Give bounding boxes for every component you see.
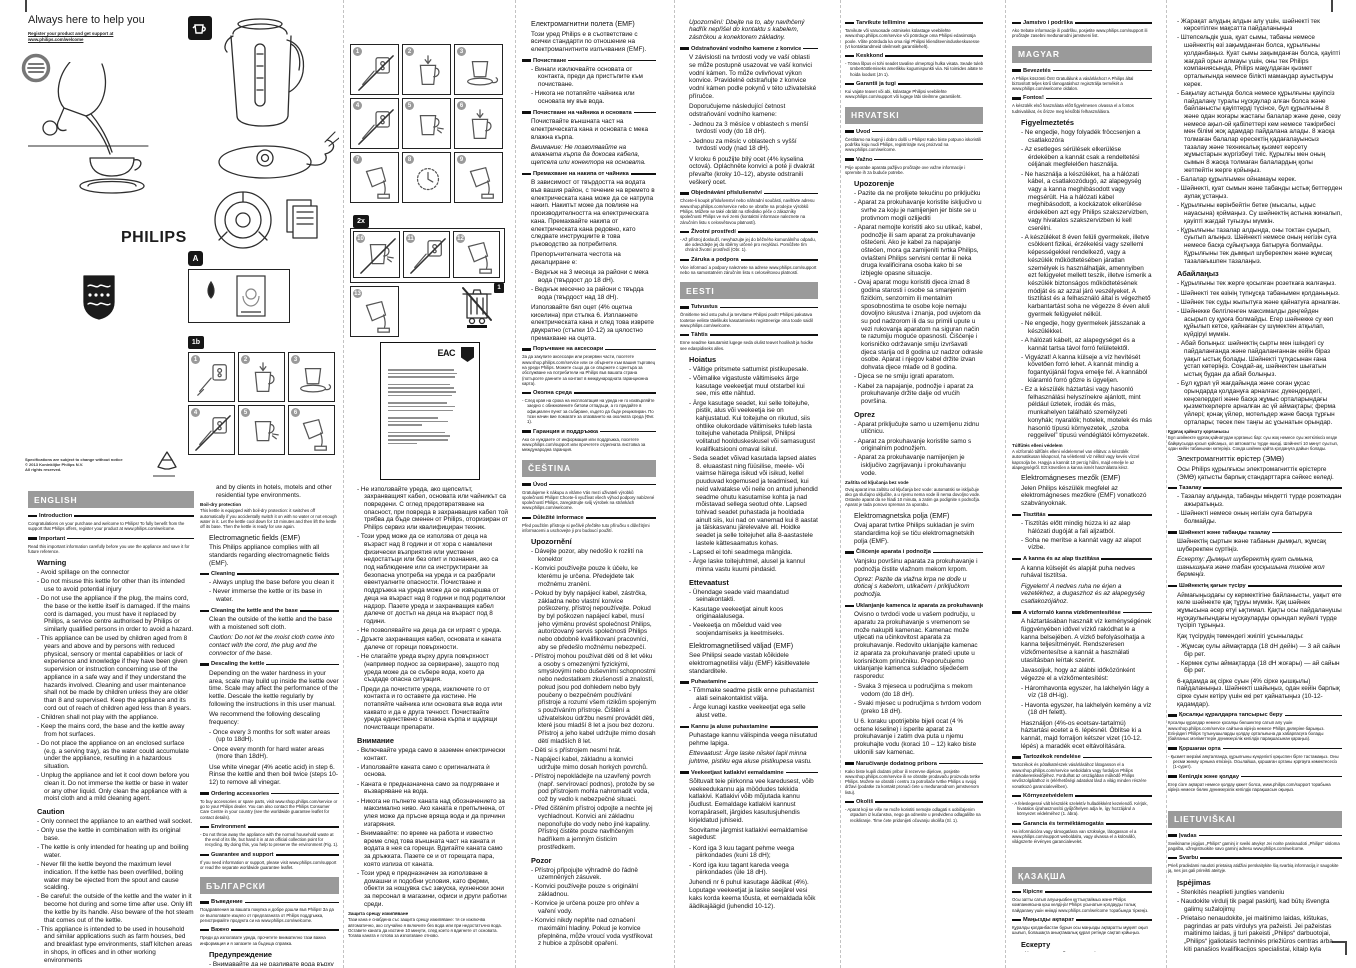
- paragraph: A kanna külsejét és alapját puha nedves …: [1021, 565, 1152, 580]
- list-item: Do not use the appliance if the plug, th…: [37, 595, 194, 634]
- list-item: Ühendage seade vaid maandatud seinakonta…: [689, 589, 818, 604]
- list-item: Құрылғыны тазалар алдында, оны токтан су…: [1177, 227, 1342, 266]
- subsection-title: Hoiatus: [689, 355, 818, 364]
- fine-print-item: Až přístroj doslouží, nevyhazujte jej do…: [680, 237, 818, 253]
- step-13-pictogram: 13: [350, 286, 399, 337]
- list-item: Тазалау алдында, табанды міндетті түрде …: [1177, 493, 1342, 508]
- list-item: Před čištěním přístroj odpojte a nechte …: [531, 805, 656, 851]
- section-heading: Keskkond: [845, 53, 983, 59]
- fine-print: Егер сізге ақпарат немесе қолдау қажет б…: [1168, 782, 1342, 793]
- minor-heading: Elektromagnetilised väljad (EMF): [689, 642, 818, 650]
- fine-print: A készülék első használata előtt figyelm…: [1012, 103, 1152, 114]
- list-item: Tisztítás előtt mindig húzza ki az alap …: [1021, 520, 1152, 535]
- step-5-pictogram: 5: [238, 405, 285, 455]
- section-heading: Ordering accessories: [200, 791, 339, 797]
- note-paragraph: Caution: Do not let the moist cloth come…: [209, 634, 339, 657]
- note-paragraph: Figyelem! A nedves ruha ne érjen a vezet…: [1021, 583, 1152, 606]
- list-item: Внимавайте да не разливате вода върху ко…: [209, 961, 339, 966]
- note-paragraph: Внимание: Не позволявайте на влажната къ…: [531, 144, 656, 167]
- paragraph: В зависимост от твърдостта на водата във…: [531, 179, 656, 248]
- list-item: Once every 3 months for soft water areas…: [209, 729, 339, 744]
- section-heading: Tisztítás: [1012, 512, 1152, 518]
- spacer: [1168, 794, 1342, 804]
- list-item: Djeca se ne smiju igrati aparatom.: [854, 373, 983, 381]
- list-item: Kord iga 3 kuu tagant pehme veega piirko…: [689, 845, 818, 860]
- list-item: Този уред може да се използва от деца на…: [357, 533, 508, 625]
- list-item: Kasutage veekeetjat ainult koos originaa…: [689, 606, 818, 621]
- list-item: Võimalike vigastuste vältimiseks ärge ka…: [689, 375, 818, 398]
- section-heading: Introduction: [28, 513, 194, 519]
- step-10-pictogram: 10: [353, 231, 400, 278]
- language-header: LIETUVIŠKAI: [1168, 811, 1342, 828]
- paragraph: V kroku 6 použijte bílý ocet (4% kyselin…: [689, 156, 818, 187]
- fine-print: Kako biste kupili dodatni pribor ili rez…: [845, 769, 983, 795]
- list-item: Only connect the appliance to an earthed…: [37, 818, 194, 826]
- list-item: Aparat za prokuhavanje namijenjen je isk…: [854, 454, 983, 477]
- section-heading: Гаранция и поддръжка: [522, 429, 656, 435]
- section-heading: Kannu ja aluse puhastamine: [680, 724, 818, 730]
- language-header: MAGYAR: [1012, 46, 1152, 63]
- list-item: A hálózati kábelt, az alapegységet és a …: [1021, 337, 1152, 352]
- list-item: Ärge kasutage seadet, kui selle toitejuh…: [689, 400, 818, 454]
- list-item: Vältige pritsmete sattumist pistikupesal…: [689, 366, 818, 374]
- list-item: Seda seadet võivad kasutada lapsed alate…: [689, 455, 818, 547]
- list-item: Stenkitės neaplieti jungties vandeniu: [1177, 889, 1342, 897]
- language-header: ENGLISH: [28, 491, 194, 508]
- list-item: Avoid spillage on the connector: [37, 569, 194, 577]
- paragraph: Ovisno o tvrdoći vode u vašem području, …: [854, 611, 983, 680]
- step-2-pictogram: 2: [402, 44, 451, 95]
- note-paragraph: Ескерту: Дымқыл шүберектің қуат сымына, …: [1177, 556, 1342, 579]
- section-heading: Қоршаған орта: [1168, 746, 1342, 752]
- column-czech-2-eesti: Upozornění: Dbejte na to, aby navlhčený …: [680, 16, 818, 952]
- fine-print: Поздравления за вашата покупка и добре д…: [200, 907, 339, 923]
- section-heading: Tartozékok rendelése: [1012, 754, 1152, 760]
- step-1-pictogram: 1: [188, 352, 235, 402]
- product-overview-illustration: [203, 14, 339, 252]
- language-header: ҚАЗАҚША: [1012, 867, 1152, 884]
- section-heading: Кіріспе: [1012, 889, 1152, 895]
- list-item: Napájecí kabel, základnu a konvici udržu…: [531, 756, 656, 771]
- list-item: Pazite da ne prolijete tekućinu po prikl…: [854, 190, 983, 198]
- list-item: Винаги изключвайте основата от контакта,…: [531, 66, 656, 89]
- list-item: Бақылау астында болса немесе құрылғыны қ…: [1177, 90, 1342, 175]
- section-heading: Važno: [845, 157, 983, 163]
- section-heading: Objednávání příslušenství: [680, 190, 818, 196]
- list-item: Кермек сулы аймақтарда (18 dH жоғары) — …: [1177, 660, 1342, 675]
- register-url: www.philips.com/welcome: [28, 37, 113, 43]
- fine-print: Prieš pradėdami naudoti prietaisą atidži…: [1168, 863, 1342, 874]
- list-item: Přístroj mohou používat děti od 8 let vě…: [531, 653, 656, 745]
- list-item: A készüléket 8 éven felüli gyermekek, il…: [1021, 234, 1152, 319]
- fine-print-title: Boil-dry protection: [200, 502, 339, 507]
- list-item: Каната е предназначена само за подгряван…: [357, 781, 508, 796]
- list-item: Ärge kunagi kastke veekeetjat ega selle …: [689, 704, 818, 719]
- fine-print: This kettle is equipped with boil-dry pr…: [200, 508, 339, 529]
- list-item: Не позволявайте на деца да си играят с у…: [357, 627, 508, 635]
- crop-mark-top-left: [25, 0, 40, 12]
- minor-heading: Electromagnetic fields (EMF): [209, 534, 339, 542]
- language-header: БЪЛГАРСКИ: [200, 877, 339, 894]
- paragraph: Vanjsku površinu aparata za prokuhavanje…: [854, 558, 983, 573]
- section-heading: Шәйнекті және табанды тазалау: [1168, 530, 1342, 536]
- list-item: Aparat nemojte koristiti ako su utikač, …: [854, 224, 983, 278]
- pour-icon: [461, 162, 499, 200]
- fine-print: Бұл шәйнекте құрғақ қайнатудан қорғаныс …: [1168, 435, 1342, 451]
- minor-heading: Elektromagnetska polja (EMF): [854, 512, 983, 520]
- paragraph: Clean the outside of the kettle and the …: [209, 616, 339, 631]
- register-text: Register your product and get support at…: [28, 31, 113, 42]
- plug-icon: [194, 414, 232, 452]
- figure-1-label: 1: [494, 283, 504, 293]
- paragraph: Използвайте бял оцет (4% оцетна киселина…: [531, 304, 656, 343]
- fine-print: Ha információra vagy támogatásra van szü…: [1012, 829, 1152, 845]
- plug-icon: [409, 237, 447, 275]
- section-heading: Cleaning the kettle and the base: [200, 608, 339, 614]
- fine-print: Құралды қолданбастан бұрын осы маңызды а…: [1012, 925, 1152, 936]
- paragraph: Doporučujeme následující četnost odstraň…: [689, 103, 818, 118]
- fine-print: A Philips köszönti Önt! Gratulálunk a vá…: [1012, 76, 1152, 92]
- list-item: Children shall not play with the applian…: [37, 714, 194, 722]
- list-item: Ne engedje, hogy gyermekek játsszanak a …: [1021, 320, 1152, 335]
- list-item: Aparat za prokuhavanje koristite samo s …: [854, 438, 983, 453]
- fine-print: Prije uporabe aparata pažljivo pročitajt…: [845, 165, 983, 176]
- list-item: Jednou za měsíc v oblastech s vyšší tvrd…: [689, 138, 818, 153]
- list-item: Бұл құрал үй жағдайында және соған ұқсас…: [1177, 380, 1342, 426]
- weee-bin-icon: [459, 286, 495, 328]
- list-item: Unplug the appliance and let it cool dow…: [37, 772, 194, 803]
- list-item: Шәйнек тек суды жылытуға және қайнатуға …: [1177, 299, 1342, 307]
- list-item: Абай болыңыз: шәйнектің сырты мен ішінде…: [1177, 340, 1342, 379]
- step-6-pictogram: 6: [454, 98, 503, 149]
- pour-icon: [357, 296, 395, 334]
- fine-print-item: Aparat koji se više ne može koristiti ne…: [845, 807, 983, 823]
- subsection-title: Абайлаңыз: [1177, 269, 1342, 278]
- fine-print: Осы затты сатып алуыңызбен құттықтаймыз …: [1012, 897, 1152, 913]
- column-bulgarian-3-czech: Електромагнитни полета (EMF)Този уред Ph…: [522, 16, 656, 952]
- fill-icon: [461, 108, 499, 146]
- paragraph: Jelen Philips készülék megfelel az elekt…: [1021, 485, 1152, 508]
- list-item: Přístroj nepokládejte na uzavřený povrch…: [531, 773, 656, 804]
- list-item: Използвайте каната само с оригиналната ѝ…: [357, 764, 508, 779]
- section-heading: Cleaning: [200, 571, 339, 577]
- paragraph: Use white vinegar (4% acetic acid) in st…: [209, 764, 339, 787]
- list-item: Soha ne merítse a kannát vagy az alapot …: [1021, 537, 1152, 552]
- paragraph: Depending on the water hardness in your …: [209, 670, 339, 709]
- paragraph: Аймағыңыздағы су кермектігіне байланысты…: [1177, 592, 1342, 631]
- fine-print-item: Қызмет мерзімі аяқталғанда, құрылғыны кү…: [1168, 754, 1342, 770]
- list-item: Tõmmake seadme pistik enne puhastamist a…: [689, 687, 818, 702]
- paragraph: Soovitame järgmist katlakivi eemaldamise…: [689, 827, 818, 842]
- cover-tagline: Always here to help you: [28, 14, 145, 26]
- pictogram-group-label: 1b: [188, 336, 204, 349]
- section-heading: Bevezetés: [1012, 68, 1152, 74]
- fine-print: Před použitím přístroje si pečlivě přečt…: [522, 523, 656, 534]
- section-heading: Veekeetjast katlakivi eemaldamine: [680, 770, 818, 776]
- list-item: Svaka 3 mjeseca u područjima s mekom vod…: [854, 683, 983, 698]
- section-heading: Puhastamine: [680, 679, 818, 685]
- section-heading: Околна среда: [522, 390, 656, 396]
- paragraph: Қақ түсірудің төмендегі жиілігі ұсынылад…: [1177, 633, 1342, 641]
- section-heading: A vízforraló kanna vízkőmentesítése: [1012, 610, 1152, 616]
- section-heading: Кепілдік және қолдау: [1168, 774, 1342, 780]
- list-item: Веднъж месечно за райони с твърда вода (…: [531, 286, 656, 301]
- section-heading: Životní prostředí: [680, 229, 818, 235]
- minor-heading: Электромагниттік өрістер (ЭМӨ): [1177, 455, 1342, 463]
- paragraph: U 6. koraku upotrijebite bijeli ocat (4 …: [854, 718, 983, 757]
- section-heading: Záruka a podpora: [680, 257, 818, 263]
- list-item: Ovaj aparat mogu koristiti djeca iznad 8…: [854, 279, 983, 371]
- list-item: Konvici používejte pouze s originální zá…: [531, 883, 656, 898]
- list-item: Naudokite virdulį tik pagal paskirtį, ka…: [1177, 898, 1342, 913]
- column-kazakh-2-lietuviskai: Жарақат алудың алдын алу үшін, шәйнекті …: [1168, 16, 1342, 952]
- column-hrvatski-2-magyar-kazakh: Jamstvo i podrškaAko trebate informacije…: [1012, 16, 1152, 952]
- list-item: Do not misuse this kettle for other than…: [37, 578, 194, 593]
- section-heading: Tarvikute tellimine: [845, 20, 983, 26]
- fold-line: [343, 0, 344, 968]
- fine-print: Tartozékok és pótalkatrészek vásárlásáho…: [1012, 762, 1152, 788]
- list-item: Once every month for hard water areas (m…: [209, 746, 339, 761]
- list-item: Шәйнекті, қуат сымын және табанды ыстық …: [1177, 185, 1342, 200]
- switch-icon: [244, 414, 282, 452]
- fine-print-item: Tööea lõpus ei tohi seadet tavalise olme…: [845, 61, 983, 77]
- step-3-pictogram: 3: [454, 44, 503, 95]
- fine-print-title: Túlfűtés elleni védelem: [1012, 443, 1152, 448]
- fine-print: Read this important information carefull…: [28, 544, 194, 555]
- list-item: Havonta egyszer, ha lakhelyén kemény a v…: [1021, 702, 1152, 717]
- paragraph: A háztartásában használt víz keménységén…: [1021, 618, 1152, 664]
- list-item: Този уред е предназначен за използване в…: [357, 870, 508, 909]
- list-item: Aparat za prokuhavanje koristite isključ…: [854, 199, 983, 222]
- section-heading: Тазалау: [1168, 485, 1342, 491]
- section-heading: Маңызды ақпарат: [1012, 917, 1152, 923]
- section-heading: Uklanjanje kamenca iz aparata za prokuha…: [845, 603, 983, 609]
- step-7-pictogram: 7: [350, 152, 399, 203]
- section-heading: Environment: [200, 824, 339, 830]
- list-item: Жұмсақ сулы аймақтарда (18 dH дейін) — 3…: [1177, 643, 1342, 658]
- list-item: Веднъж на 3 месеца за райони с мека вода…: [531, 269, 656, 284]
- section-heading: A kanna és az alap tisztítása: [1012, 556, 1152, 562]
- fine-print-item: Do not throw away the appliance with the…: [200, 832, 339, 848]
- plug-icon: [194, 361, 232, 399]
- fine-print-item: След края на срока на експлоатация на ур…: [522, 398, 656, 424]
- paragraph: Juhendi nr 6 puhul kasutage äädikat (4%)…: [689, 879, 818, 910]
- eac-mark: EAC: [437, 348, 455, 358]
- note-paragraph: Ettevaatust: Ärge laske niiskel lapil mi…: [689, 750, 818, 765]
- column-eesti-2-hrvatski: Tarvikute tellimineTarvikute või varuosa…: [845, 16, 983, 952]
- list-item: Never fill the kettle beyond the maximum…: [37, 861, 194, 892]
- list-item: Děti si s přístrojem nesmí hrát.: [531, 747, 656, 755]
- fine-print: Ovaj aparat ima zaštitu od ključanja bez…: [845, 487, 983, 508]
- paragraph: We recommend the following descaling fre…: [209, 711, 339, 726]
- register-line1: Register your product and get support at: [28, 31, 113, 37]
- list-item: Jednou za 3 měsíce v oblastech s menší t…: [689, 121, 818, 136]
- list-item: This appliance can be used by children a…: [37, 635, 194, 712]
- subsection-title: Upozornění: [531, 537, 656, 546]
- fine-print: Congratulations on your purchase and wel…: [28, 521, 194, 532]
- switch-icon: [359, 237, 397, 275]
- paragraph: Шәйнектің сыртын және табанын дымқыл, жұ…: [1177, 538, 1342, 553]
- fine-print: Õnnitleme teid ostu puhul ja tervitame P…: [680, 312, 818, 328]
- subsection-title: Upozorenje: [854, 179, 983, 188]
- list-item: Құрылғыны тек жерге қосылған розеткаға ж…: [1177, 280, 1342, 288]
- section-heading: Въведение: [200, 899, 339, 905]
- paragraph: Használjon (4%-os ecetsav-tartalmú) házt…: [1021, 720, 1152, 751]
- list-item-continuation: and by clients in hotels, motels and oth…: [216, 484, 339, 499]
- list-item: Kord iga kuu tagant kareda veega piirkon…: [689, 862, 818, 877]
- paragraph: Puhastage kannu välispinda veega niisuta…: [689, 732, 818, 747]
- section-heading: Премахване на накипа от чайника: [522, 171, 656, 177]
- paragraph: Препоръчителната честота на декалциране …: [531, 251, 656, 266]
- footer-line3: All rights reserved.: [25, 467, 123, 472]
- pour-icon: [459, 237, 497, 275]
- list-item: Kabel za napajanje, podnožje i aparat za…: [854, 383, 983, 406]
- filter-callout-label: A: [188, 251, 203, 266]
- fold-line: [515, 0, 516, 968]
- figure-1-number: 1: [497, 285, 500, 291]
- list-item: Always unplug the base before you clean …: [209, 579, 339, 587]
- subsection-title: Ескерту: [1021, 940, 1152, 949]
- subsection-title: Предупреждение: [209, 950, 339, 959]
- section-heading: Garancia és terméktámogatás: [1012, 821, 1152, 827]
- paragraph: See Philipsi seade vastab kõikidele elek…: [689, 652, 818, 675]
- fine-print-title: Zaštita od ključanja bez vode: [845, 480, 983, 485]
- fine-print: To buy accessories or spare parts, visit…: [200, 799, 339, 820]
- minor-heading: Elektromágneses mezők (EMF): [1021, 474, 1152, 482]
- fine-print-title: Защита срещу изкипяване: [348, 911, 508, 916]
- paragraph: Този уред Philips е в съответствие с вси…: [531, 31, 656, 54]
- paragraph: Ovaj aparat tvrtke Philips sukladan je s…: [854, 522, 983, 545]
- subsection-title: Figyelmeztetés: [1021, 118, 1152, 127]
- filter-callout-box: [188, 269, 290, 323]
- crop-mark-top-right: [1318, 0, 1333, 12]
- paragraph: Javasoljuk, hogy az alábbi időközönként …: [1021, 667, 1152, 682]
- step-4-pictogram: 4: [188, 405, 235, 455]
- fold-line: [840, 0, 841, 968]
- fill-icon: [244, 361, 282, 399]
- clock-icon: [409, 162, 447, 200]
- section-heading: Odstraňování vodního kamene z konvice: [680, 46, 818, 52]
- list-item: Никога не пълнете каната над обозначение…: [357, 798, 508, 829]
- list-item: Құрылғыны көрінбейтін бетке (мысалы, ыды…: [1177, 202, 1342, 225]
- fine-print: За да закупите аксесоари или резервни ча…: [522, 354, 656, 386]
- fold-line: [1166, 0, 1167, 968]
- list-item: Svaki mjesec u područjima s tvrdom vodom…: [854, 700, 983, 715]
- list-item: Ne engedje, hogy folyadék fröccsenjen a …: [1021, 129, 1152, 144]
- list-item: Балалар құрылғымен ойнамауы керек.: [1177, 176, 1342, 184]
- fine-print-title: Құрғақ қайнату қорғанысы: [1168, 429, 1342, 434]
- philips-logo: PHILIPS: [121, 229, 187, 247]
- minor-heading: Електромагнитни полета (EMF): [531, 20, 656, 28]
- fine-print: Enne seadme kasutamist lugege seda oluli…: [680, 340, 818, 351]
- section-heading: Naručivanje dodatnog pribora: [845, 761, 983, 767]
- step-8-pictogram: 8: [402, 152, 451, 203]
- section-heading: Uvod: [845, 129, 983, 135]
- fine-print: A vízforraló túlfűtés elleni védelemmel …: [1012, 449, 1152, 470]
- section-heading: Важно: [200, 927, 339, 933]
- section-heading: Důležité informace: [522, 515, 656, 521]
- list-item: Vigyázat! A kanna külseje a víz hevítésé…: [1021, 354, 1152, 385]
- list-item: Не използвайте уреда, ако щепселът, захр…: [357, 486, 508, 532]
- list-item: Only use the kettle in combination with …: [37, 827, 194, 842]
- list-item: Never immerse the kettle or its base in …: [209, 588, 339, 603]
- fine-print: If you need information or support, plea…: [200, 860, 339, 871]
- section-heading: Почистване: [522, 58, 656, 64]
- list-item: Keep the mains cord, the base and the ke…: [37, 723, 194, 738]
- list-item: Dávejte pozor, aby nedošlo k rozlití na …: [531, 548, 656, 563]
- manual-sheet: Always here to help you Register your pr…: [0, 0, 1356, 968]
- list-item: This appliance is intended to be used in…: [37, 926, 194, 965]
- section-heading: Jamstvo i podrška: [1012, 20, 1152, 26]
- step-2-pictogram: 2: [238, 352, 285, 402]
- plug-icon: [357, 54, 395, 92]
- list-item: Ez a készülék háztartási vagy hasonló fe…: [1021, 386, 1152, 440]
- step-3-pictogram: 3: [288, 352, 335, 402]
- step-4-pictogram: 4: [350, 98, 399, 149]
- pour-icon: [357, 162, 395, 200]
- fine-print: Ako trebate informacije ili podršku, pos…: [1012, 28, 1152, 39]
- fill-icon: [409, 54, 447, 92]
- fine-print: Kui vajate teavet või abi, külastage Phi…: [845, 89, 983, 100]
- fine-print: Sveikiname įsigijus „Philips“ gaminį ir …: [1168, 841, 1342, 852]
- list-item: Штепсельдік ұша, қуат сымы, табаны немес…: [1177, 34, 1342, 88]
- copyright-text: Specifications are subject to change wit…: [25, 457, 123, 472]
- subsection-title: Įspėjimas: [1177, 878, 1342, 887]
- note-paragraph: Upozornění: Dbejte na to, aby navlhčený …: [689, 19, 818, 42]
- section-heading: Почистване на чайника и основата: [522, 110, 656, 116]
- section-heading: Descaling the kettle: [200, 661, 339, 667]
- list-item: Жарақат алудың алдын алу үшін, шәйнекті …: [1177, 18, 1342, 33]
- list-item: Veekeetja on mõeldud vaid vee soojendami…: [689, 622, 818, 637]
- list-item: Do not place the appliance on an enclose…: [37, 740, 194, 771]
- subsection-title: Oprez: [854, 410, 983, 419]
- list-item: Konvici používejte pouze k účelu, ke kte…: [531, 565, 656, 588]
- language-header: EESTI: [680, 282, 818, 299]
- section-heading: Шәйнектің қағын түсіру: [1168, 583, 1342, 589]
- section-heading: Įvadas: [1168, 833, 1342, 839]
- section-heading: Қосалқы құралдарға тапсырыс беру: [1168, 712, 1342, 718]
- fine-print: Тази кана е снабдена със защита срещу из…: [348, 917, 508, 938]
- section-heading: Important: [28, 536, 194, 542]
- section-heading: Úvod: [522, 482, 656, 488]
- section-heading: Környezetvédelem: [1012, 793, 1152, 799]
- list-item: Pokud by byly napájecí kabel, zástrčka, …: [531, 590, 656, 652]
- list-item: Prietaiso nenaudokite, jei maitinimo lai…: [1177, 915, 1342, 952]
- section-heading: Okoliš: [845, 799, 983, 805]
- list-item: Konvice je určena pouze pro ohřev a vaře…: [531, 900, 656, 915]
- fine-print: Gratulujeme k nákupu a vítáme Vás mezi u…: [522, 490, 656, 511]
- fine-print: Tarvikute või varuosade ostmiseks külast…: [845, 28, 983, 49]
- pictogram-group-label: 2x: [353, 215, 369, 228]
- step-11-pictogram: 11: [403, 231, 450, 278]
- list-item: Háromhavonta egyszer, ha lakhelyén lágy …: [1021, 685, 1152, 700]
- step-6-pictogram: 6: [288, 405, 335, 455]
- pour-icon: [294, 414, 332, 452]
- plug-icon: [357, 108, 395, 146]
- list-item: Aparat priključujte samo u uzemljenu zid…: [854, 421, 983, 436]
- base-icon: [461, 54, 499, 92]
- subsection-title: Ettevaatust: [689, 578, 818, 587]
- note-paragraph: Oprez: Pazite da vlažna krpa ne dođe u d…: [854, 576, 983, 599]
- list-item: Be careful: the outside of the kettle an…: [37, 893, 194, 924]
- list-item: The kettle is only intended for heating …: [37, 844, 194, 859]
- section-heading: Поръчване на аксесоари: [522, 346, 656, 352]
- section-heading: Svarbu: [1168, 855, 1342, 861]
- section-heading: Čišćenje aparata i podnožja: [845, 549, 983, 555]
- section-heading: Guarantee and support: [200, 852, 339, 858]
- column-bulgarian-2: Не използвайте уреда, ако щепселът, захр…: [348, 484, 508, 966]
- step-1-pictogram: 1: [350, 44, 399, 95]
